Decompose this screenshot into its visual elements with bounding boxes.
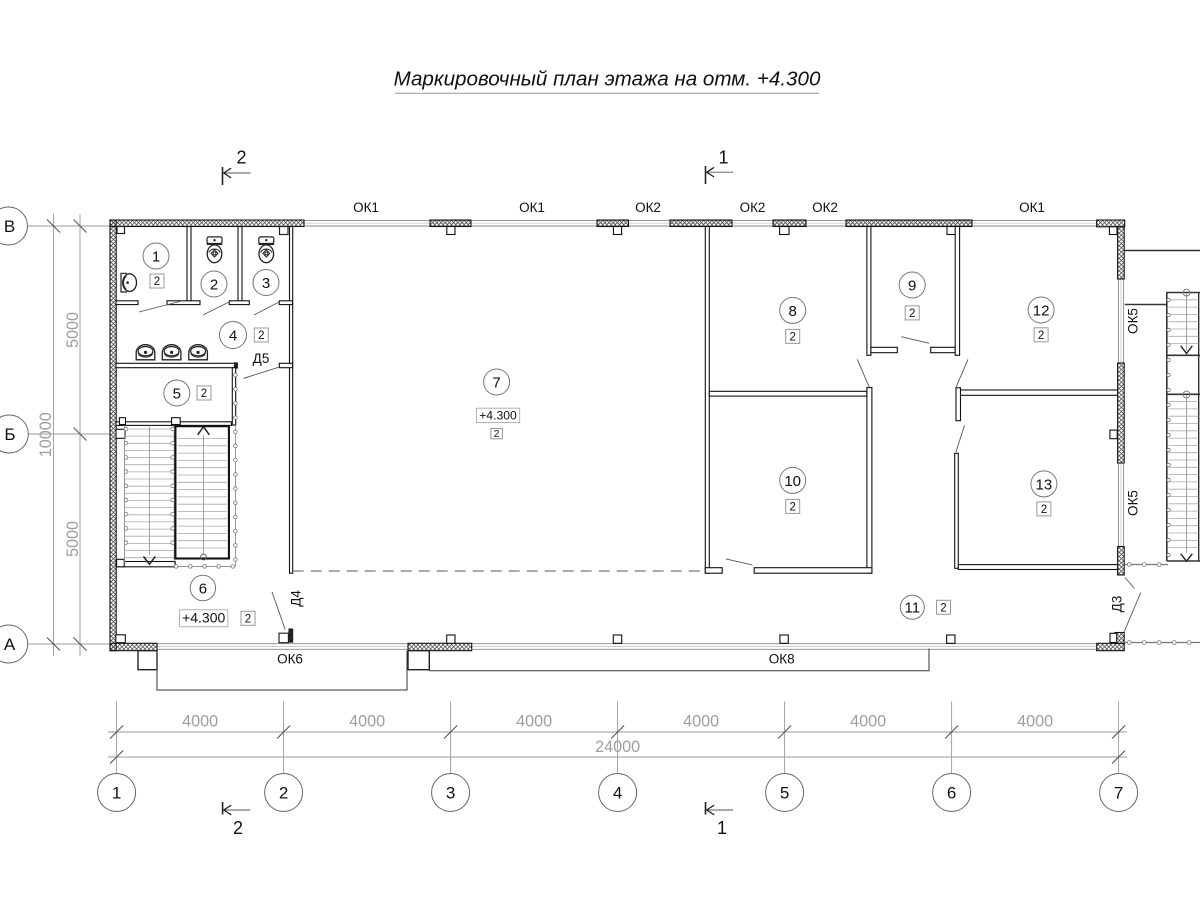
svg-text:В: В	[4, 217, 15, 236]
svg-text:7: 7	[492, 374, 500, 391]
svg-text:А: А	[4, 635, 16, 654]
svg-text:1: 1	[717, 818, 727, 838]
svg-text:2: 2	[245, 613, 251, 625]
svg-text:4000: 4000	[850, 713, 886, 731]
svg-text:2: 2	[1041, 504, 1047, 516]
svg-text:2: 2	[494, 428, 500, 440]
svg-text:ОК2: ОК2	[812, 200, 838, 215]
svg-text:6: 6	[199, 580, 207, 597]
svg-text:2: 2	[279, 784, 288, 803]
svg-text:5: 5	[173, 385, 181, 402]
svg-text:6: 6	[947, 784, 956, 803]
svg-text:ОК1: ОК1	[353, 200, 379, 215]
svg-text:2: 2	[789, 331, 795, 343]
svg-text:ОК2: ОК2	[740, 200, 766, 215]
svg-text:1: 1	[112, 784, 121, 803]
svg-text:4000: 4000	[182, 713, 218, 731]
svg-text:11: 11	[905, 600, 921, 617]
svg-text:5000: 5000	[64, 521, 82, 557]
svg-text:8: 8	[789, 303, 797, 320]
svg-text:10: 10	[784, 473, 801, 490]
svg-text:1: 1	[152, 248, 160, 265]
svg-text:ОК2: ОК2	[635, 200, 661, 215]
svg-text:ОК5: ОК5	[1126, 308, 1141, 334]
svg-text:1: 1	[718, 148, 728, 168]
svg-text:4000: 4000	[683, 713, 719, 731]
svg-text:3: 3	[446, 784, 455, 803]
svg-text:2: 2	[154, 276, 160, 288]
svg-text:2: 2	[233, 818, 243, 838]
svg-text:2: 2	[789, 501, 795, 513]
svg-text:ОК1: ОК1	[519, 200, 545, 215]
svg-text:2: 2	[210, 276, 218, 293]
svg-text:4: 4	[229, 327, 237, 344]
svg-text:Маркировочный план этажа на от: Маркировочный план этажа на отм. +4.300	[394, 68, 821, 91]
svg-text:7: 7	[1114, 784, 1123, 803]
svg-text:10000: 10000	[37, 412, 55, 457]
svg-text:Б: Б	[4, 425, 15, 444]
svg-text:5: 5	[780, 784, 789, 803]
svg-text:Д4: Д4	[289, 590, 304, 607]
svg-text:ОК5: ОК5	[1126, 490, 1141, 516]
svg-text:2: 2	[1038, 330, 1044, 342]
svg-text:4000: 4000	[349, 713, 385, 731]
svg-text:2: 2	[201, 388, 207, 400]
svg-text:2: 2	[236, 148, 246, 168]
svg-text:12: 12	[1033, 302, 1050, 319]
svg-text:24000: 24000	[595, 738, 640, 756]
svg-text:3: 3	[262, 275, 270, 292]
svg-text:ОК1: ОК1	[1019, 200, 1045, 215]
svg-text:ОК8: ОК8	[769, 651, 795, 666]
svg-text:Д3: Д3	[1110, 596, 1125, 613]
svg-text:4: 4	[613, 784, 622, 803]
svg-text:5000: 5000	[64, 312, 82, 348]
svg-text:+4.300: +4.300	[479, 408, 517, 422]
svg-text:ОК6: ОК6	[277, 652, 303, 667]
svg-text:4000: 4000	[516, 713, 552, 731]
svg-text:2: 2	[258, 330, 264, 342]
svg-text:4000: 4000	[1017, 713, 1053, 731]
svg-text:2: 2	[940, 602, 946, 614]
svg-text:Д5: Д5	[253, 351, 270, 366]
svg-text:13: 13	[1036, 476, 1053, 493]
svg-text:9: 9	[908, 277, 916, 294]
svg-text:+4.300: +4.300	[182, 610, 225, 626]
svg-text:2: 2	[909, 308, 915, 320]
